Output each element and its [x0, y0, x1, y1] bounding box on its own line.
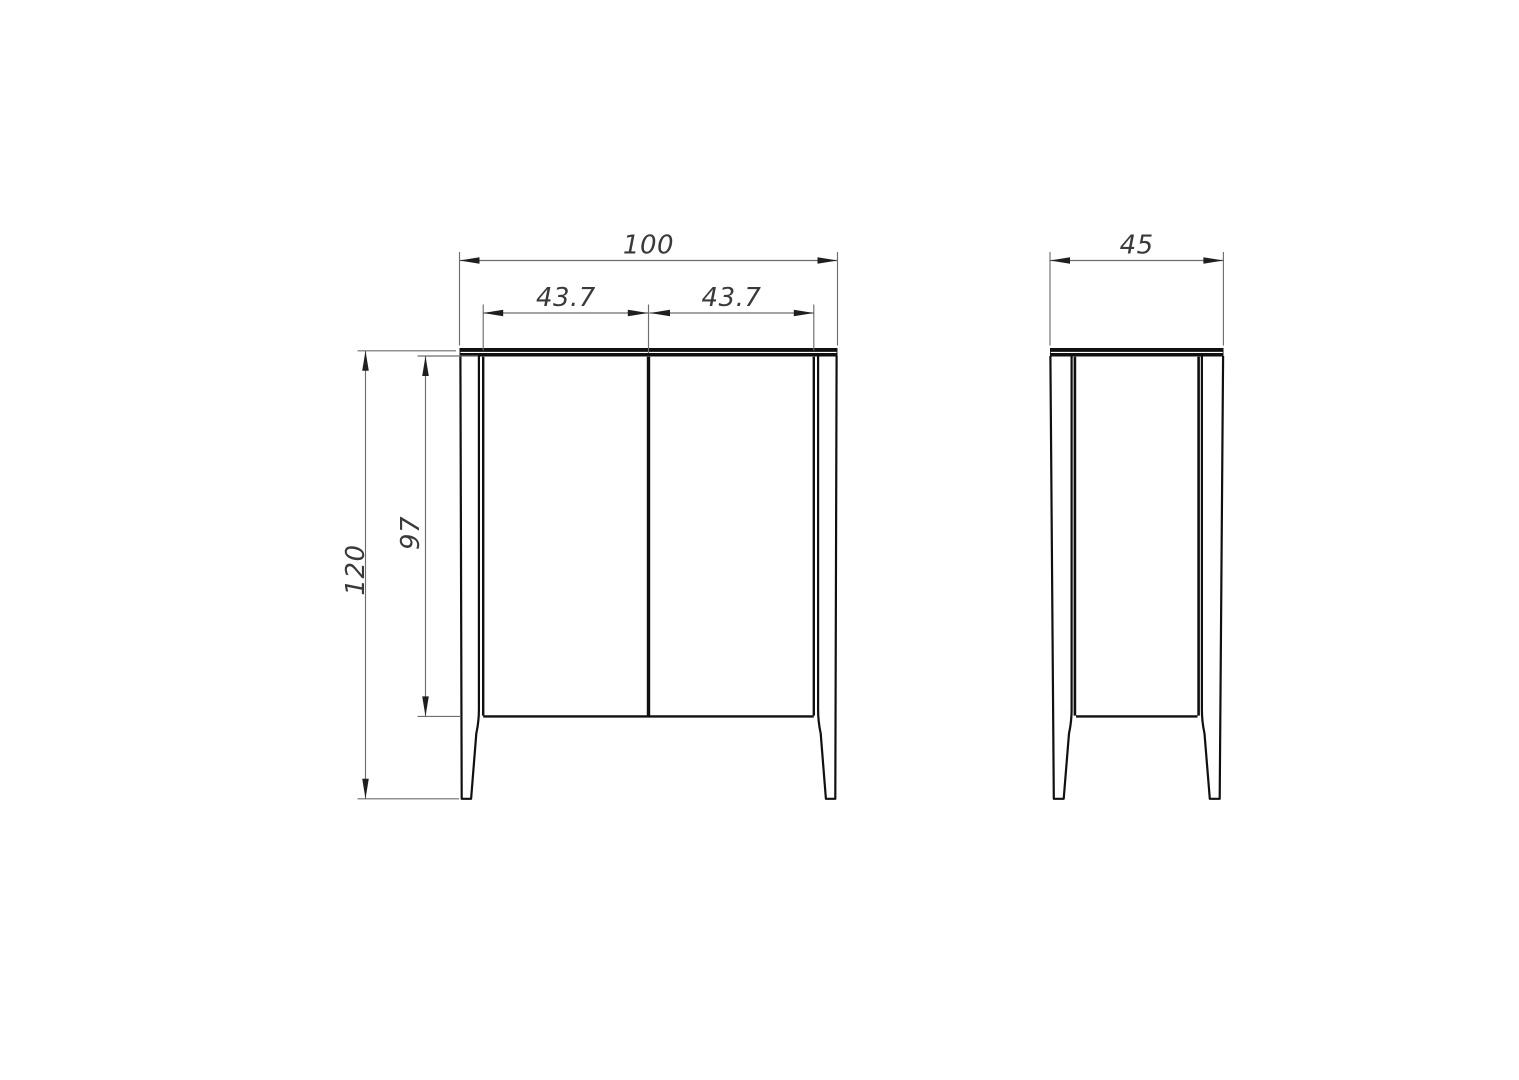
dim-front-door-left: 43.7: [483, 283, 648, 353]
dim-front-height-total: 120: [341, 351, 459, 799]
arrowhead-right: [794, 310, 814, 317]
dimension-label-depth: 45: [1120, 231, 1154, 261]
dimension-label-body-height: 97: [396, 516, 426, 550]
dim-side-depth: 45: [1050, 231, 1223, 346]
dim-front-door-right: 43.7: [649, 283, 814, 351]
side-left-leg: [1050, 356, 1071, 799]
arrowhead-left: [483, 310, 503, 317]
dimension-label-door-right: 43.7: [702, 283, 762, 313]
side-right-leg: [1202, 356, 1223, 799]
front-right-leg: [818, 356, 837, 799]
front-cabinet: [460, 348, 838, 799]
arrowhead-right: [818, 257, 838, 264]
arrowhead-bottom: [422, 696, 429, 716]
technical-drawing: 100 43.7 43.7 120: [0, 0, 1519, 1080]
arrowhead-left: [460, 257, 480, 264]
dimension-label-door-left: 43.7: [536, 283, 596, 313]
dimension-label-width-total: 100: [623, 231, 674, 261]
front-view: 100 43.7 43.7 120: [341, 231, 838, 799]
arrowhead-left: [1050, 257, 1070, 264]
arrowhead-right: [1203, 257, 1223, 264]
arrowhead-bottom: [362, 779, 369, 799]
front-left-leg: [460, 356, 479, 799]
arrowhead-top: [422, 356, 429, 376]
side-view: 45: [1050, 231, 1224, 799]
dim-front-body-height: 97: [396, 356, 478, 716]
arrowhead-left: [650, 310, 670, 317]
dimension-label-height-total: 120: [341, 544, 371, 595]
arrowhead-right: [628, 310, 648, 317]
side-cabinet: [1050, 348, 1224, 799]
arrowhead-top: [362, 351, 369, 371]
